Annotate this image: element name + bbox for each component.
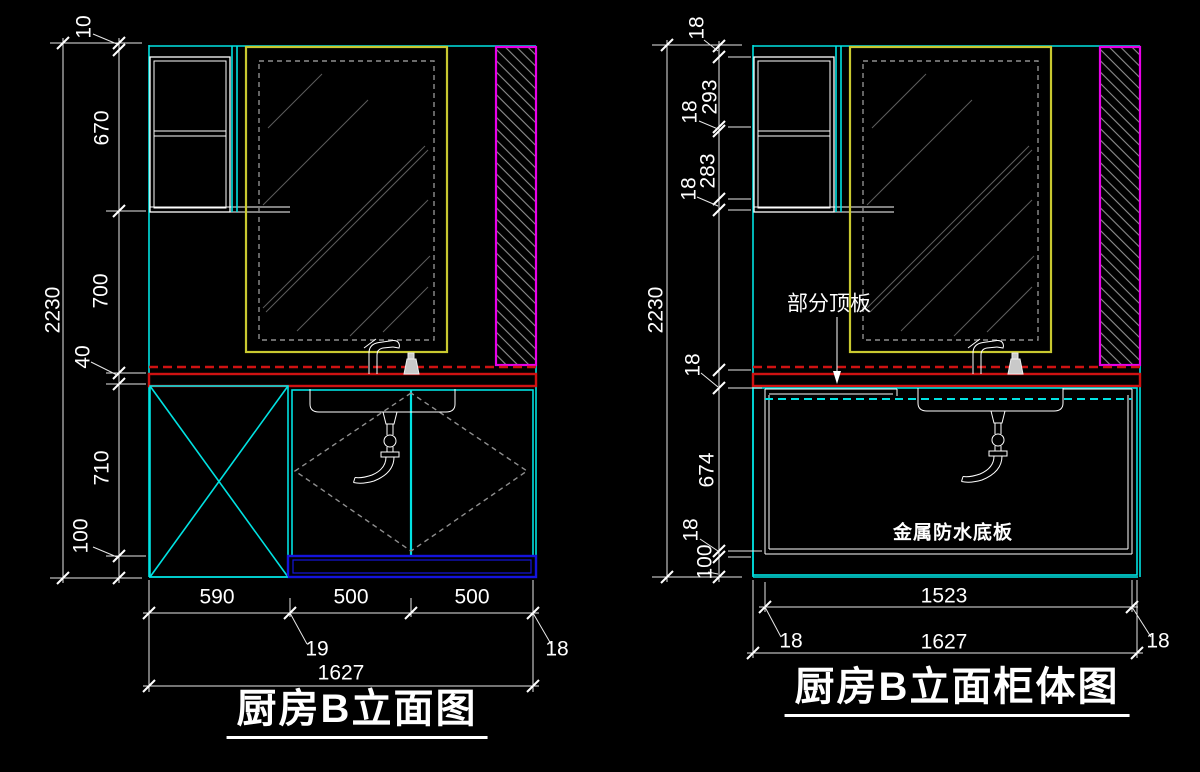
dim-right-m3: 18 [681, 518, 702, 541]
dim-left-gap19: 19 [305, 639, 328, 660]
cad-drawing-viewport: 2230 10 670 700 40 710 100 590 500 500 1… [0, 0, 1200, 772]
annotation-waterproof-bottom: 金属防水底板 [893, 524, 1013, 543]
dim-right-l18a: 18 [779, 631, 802, 652]
dim-left-top-gap: 10 [74, 15, 95, 38]
dim-left-w1: 590 [199, 587, 234, 608]
dim-right-t4: 283 [698, 153, 719, 188]
dim-right-w1523: 1523 [921, 586, 968, 607]
dim-right-t1: 18 [687, 16, 708, 39]
cad-canvas [0, 0, 1200, 772]
dim-left-overall-height: 2230 [43, 287, 64, 334]
right-drawing-title: 厨房B立面柜体图 [785, 667, 1130, 717]
dim-right-m2: 674 [697, 452, 718, 487]
dim-left-counter: 40 [73, 345, 94, 368]
dim-right-l18b: 18 [1146, 631, 1169, 652]
dim-left-side18: 18 [545, 639, 568, 660]
dim-right-m1: 18 [683, 353, 704, 376]
left-drawing-title: 厨房B立面图 [227, 689, 488, 739]
dim-right-overall-width: 1627 [921, 632, 968, 653]
dim-right-t2: 293 [700, 79, 721, 114]
dim-right-overall-height: 2230 [646, 287, 667, 334]
right-dimensions [652, 39, 1151, 659]
dim-left-overall-width: 1627 [318, 663, 365, 684]
dim-right-t3: 18 [680, 100, 701, 123]
dim-right-m4: 100 [695, 544, 716, 579]
dim-left-w3: 500 [454, 587, 489, 608]
annotation-partial-top-panel: 部分顶板 [787, 294, 871, 315]
dim-left-window: 700 [91, 273, 112, 308]
dim-left-kick: 100 [71, 518, 92, 553]
dim-left-wall-cabinet: 670 [92, 110, 113, 145]
dim-left-w2: 500 [333, 587, 368, 608]
dim-right-t5: 18 [679, 177, 700, 200]
left-base-cabinets [149, 386, 536, 577]
dim-left-base: 710 [92, 450, 113, 485]
